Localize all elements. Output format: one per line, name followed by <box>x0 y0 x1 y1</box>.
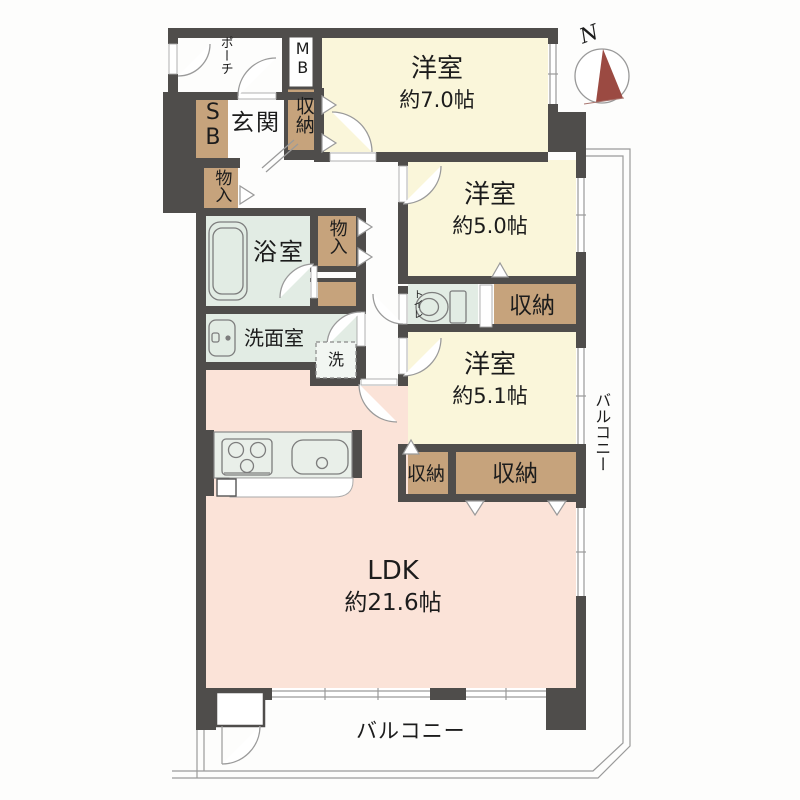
kitchen-counter <box>214 432 353 497</box>
closet-small-label: 収納 <box>407 463 445 486</box>
balcony-south-label: バルコニー <box>356 719 466 744</box>
porch-label: ポーチ <box>217 36 233 90</box>
bath-storage-label: 物入 <box>326 219 348 269</box>
toilet-door-panel <box>399 294 407 324</box>
small-tan-box-area <box>318 282 356 306</box>
bathroom-door-panel <box>311 266 317 298</box>
bedroom-51-size: 約5.1帖 <box>392 384 588 409</box>
counter-end-box <box>217 479 236 496</box>
bedroom50-closet-label: 収納 <box>509 293 555 321</box>
floor-plan: ポーチ MB SB 玄関 収納 物入 洋室 約7.0帖 洋室 約5.0帖 洋室 … <box>0 0 800 800</box>
front-door-arc <box>238 58 276 96</box>
meter-box-label: MB <box>293 39 312 87</box>
laundry-label: 洗 <box>328 350 344 369</box>
front-door-panel <box>238 93 276 99</box>
entrance-closet-label: 収納 <box>292 96 315 152</box>
porch-door-arc <box>178 44 210 76</box>
shoe-box-label: SB <box>199 100 225 158</box>
balcony-east-label: バルコニー <box>592 392 611 542</box>
balcony-door-arc <box>222 726 260 764</box>
washroom-door-panel <box>357 312 365 346</box>
toilet-label: トイレ <box>410 289 422 327</box>
bedroom-50-name: 洋室 <box>392 180 588 211</box>
bedroom-7-size: 約7.0帖 <box>337 88 537 113</box>
ldk-name: LDK <box>293 556 493 587</box>
entrance-label: 玄関 <box>231 110 281 138</box>
toilet-door-arc <box>373 294 403 324</box>
compass <box>575 49 629 104</box>
bedroom-50-size: 約5.0帖 <box>392 214 588 239</box>
bedroom7-door-panel <box>330 153 376 161</box>
porch-door-panel <box>169 44 177 74</box>
closet-large-label: 収納 <box>492 461 538 489</box>
hall-storage-arrow <box>240 186 254 204</box>
counter-edge <box>230 478 353 497</box>
balcony-door <box>216 692 264 726</box>
closet-divider-panel <box>480 285 492 327</box>
bedroom-7-name: 洋室 <box>337 54 537 85</box>
ldk-size: 約21.6帖 <box>293 590 493 618</box>
hall-storage-label: 物入 <box>211 169 231 211</box>
washroom-label: 洗面室 <box>244 326 304 350</box>
bathroom-label: 浴室 <box>253 238 305 267</box>
bedroom-51-name: 洋室 <box>392 350 588 381</box>
